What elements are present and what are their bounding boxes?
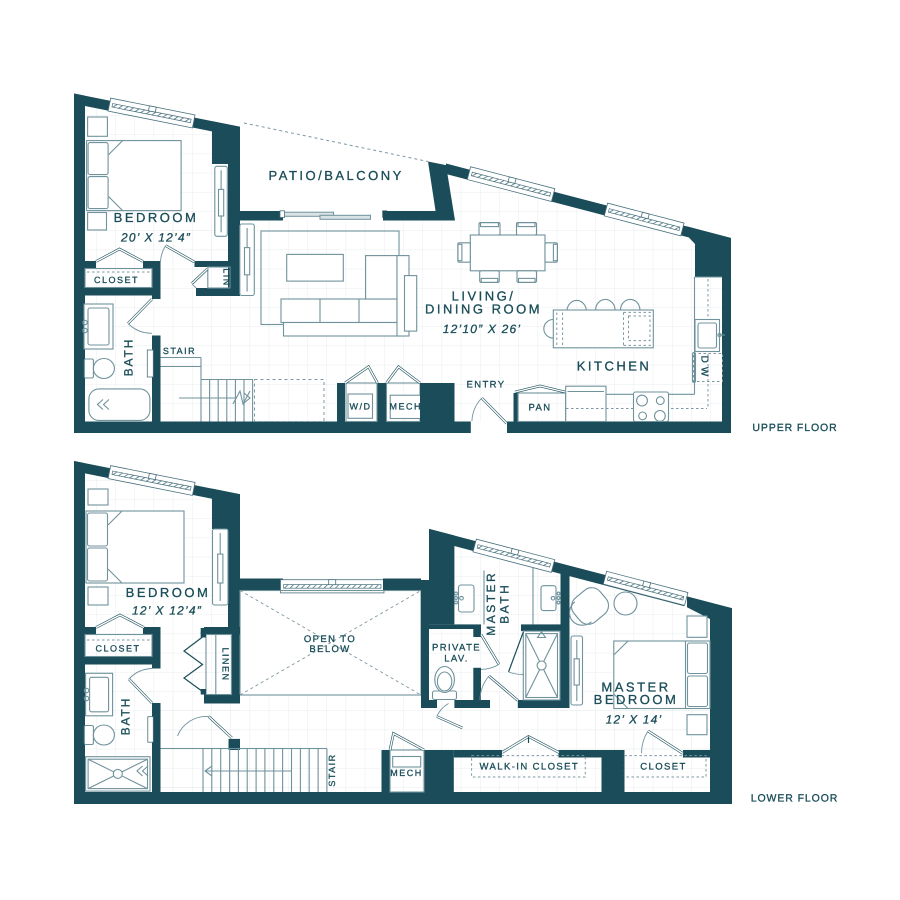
svg-text:KITCHEN: KITCHEN (577, 358, 652, 373)
svg-text:BATH: BATH (119, 697, 133, 736)
svg-text:20’ X 12’4”: 20’ X 12’4” (120, 231, 191, 245)
svg-text:CLOSET: CLOSET (640, 762, 686, 773)
svg-text:STAIR: STAIR (327, 753, 337, 786)
svg-text:DINING ROOM: DINING ROOM (425, 302, 542, 317)
svg-text:LINEN: LINEN (221, 647, 231, 681)
svg-text:LAV.: LAV. (444, 654, 469, 665)
svg-text:BELOW: BELOW (309, 644, 350, 655)
svg-text:BEDROOM: BEDROOM (126, 585, 211, 600)
svg-text:PAN: PAN (528, 403, 551, 414)
svg-text:W/D: W/D (350, 402, 372, 412)
svg-text:PRIVATE: PRIVATE (432, 643, 481, 654)
svg-text:ENTRY: ENTRY (466, 380, 505, 391)
svg-text:BATH: BATH (498, 583, 512, 624)
svg-text:PATIO/BALCONY: PATIO/BALCONY (269, 168, 404, 183)
svg-text:MECH: MECH (390, 768, 423, 778)
svg-text:MASTER: MASTER (484, 571, 498, 636)
svg-text:STAIR: STAIR (163, 346, 196, 356)
svg-text:12’ X 14’: 12’ X 14’ (606, 713, 663, 727)
svg-text:12’10” X 26’: 12’10” X 26’ (443, 322, 521, 336)
svg-text:DW: DW (699, 356, 710, 381)
svg-text:12’ X 12’4”: 12’ X 12’4” (132, 604, 202, 618)
svg-text:LOWER FLOOR: LOWER FLOOR (751, 793, 839, 805)
svg-text:MECH: MECH (390, 402, 423, 412)
svg-text:BEDROOM: BEDROOM (594, 692, 679, 707)
svg-text:BATH: BATH (122, 338, 136, 377)
svg-text:BEDROOM: BEDROOM (114, 210, 199, 225)
svg-text:LIN: LIN (222, 268, 232, 287)
svg-text:CLOSET: CLOSET (95, 644, 140, 654)
svg-text:CLOSET: CLOSET (94, 275, 139, 285)
svg-text:WALK-IN CLOSET: WALK-IN CLOSET (480, 762, 579, 773)
svg-text:UPPER FLOOR: UPPER FLOOR (752, 422, 837, 434)
